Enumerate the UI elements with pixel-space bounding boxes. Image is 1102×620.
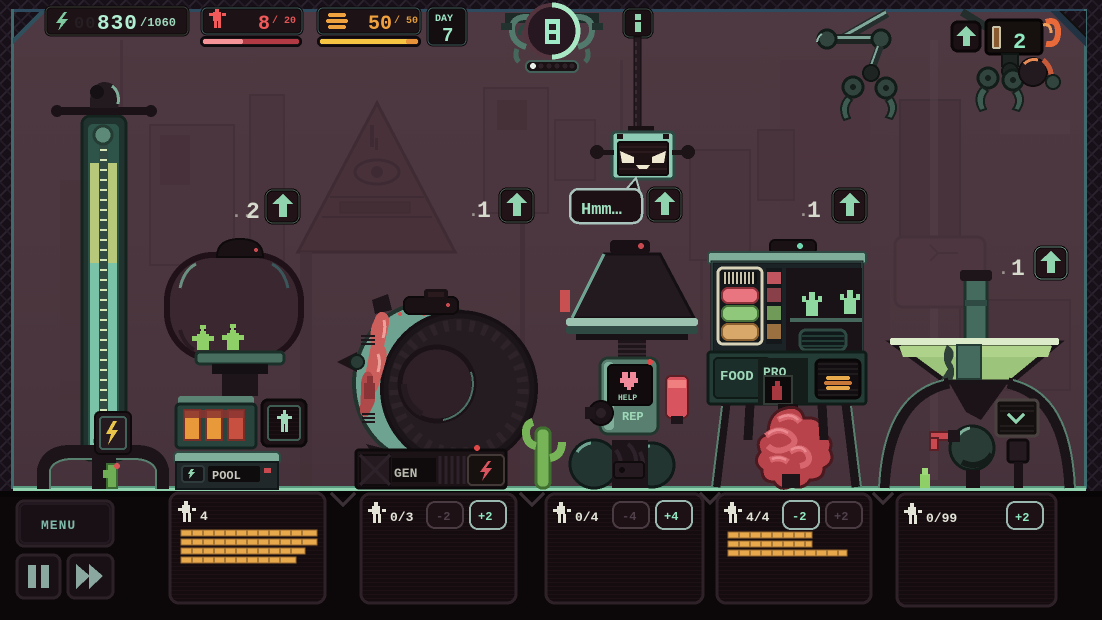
svg-text:/1060: /1060	[140, 16, 176, 30]
svg-text:POOL: POOL	[212, 469, 241, 483]
svg-text:GEN: GEN	[394, 466, 417, 481]
svg-text:FOOD: FOOD	[720, 369, 754, 385]
svg-text:1: 1	[477, 198, 491, 224]
svg-text:1: 1	[1011, 256, 1025, 282]
svg-text:50: 50	[368, 13, 392, 36]
svg-text:-4: -4	[622, 510, 636, 524]
svg-text:HELP: HELP	[618, 394, 637, 403]
svg-text:830: 830	[97, 13, 138, 36]
svg-text:+2: +2	[478, 510, 492, 524]
svg-text:Hmm…: Hmm…	[581, 201, 622, 220]
svg-text:-2: -2	[792, 510, 806, 524]
svg-text:4: 4	[200, 509, 208, 524]
svg-text:REP: REP	[622, 410, 644, 424]
svg-text:2: 2	[1013, 30, 1026, 55]
svg-text:0/99: 0/99	[926, 511, 957, 526]
svg-text:2: 2	[246, 199, 260, 225]
svg-text:+4: +4	[664, 510, 678, 524]
svg-text:/ 50: / 50	[394, 15, 418, 27]
svg-text:7: 7	[442, 25, 453, 47]
svg-text:00: 00	[74, 15, 96, 34]
svg-text:4/4: 4/4	[746, 510, 770, 525]
svg-text:MENU: MENU	[41, 518, 76, 533]
svg-text:0/4: 0/4	[575, 510, 599, 525]
svg-text:.: .	[998, 260, 1009, 280]
svg-text:1: 1	[807, 198, 821, 224]
svg-text:-2: -2	[436, 510, 450, 524]
svg-text:DAY: DAY	[435, 14, 453, 25]
svg-text:0/3: 0/3	[390, 510, 414, 525]
svg-text:+2: +2	[1015, 511, 1029, 525]
svg-text:+2: +2	[834, 510, 848, 524]
svg-text:8: 8	[258, 13, 270, 36]
svg-text:/ 20: / 20	[272, 15, 296, 27]
